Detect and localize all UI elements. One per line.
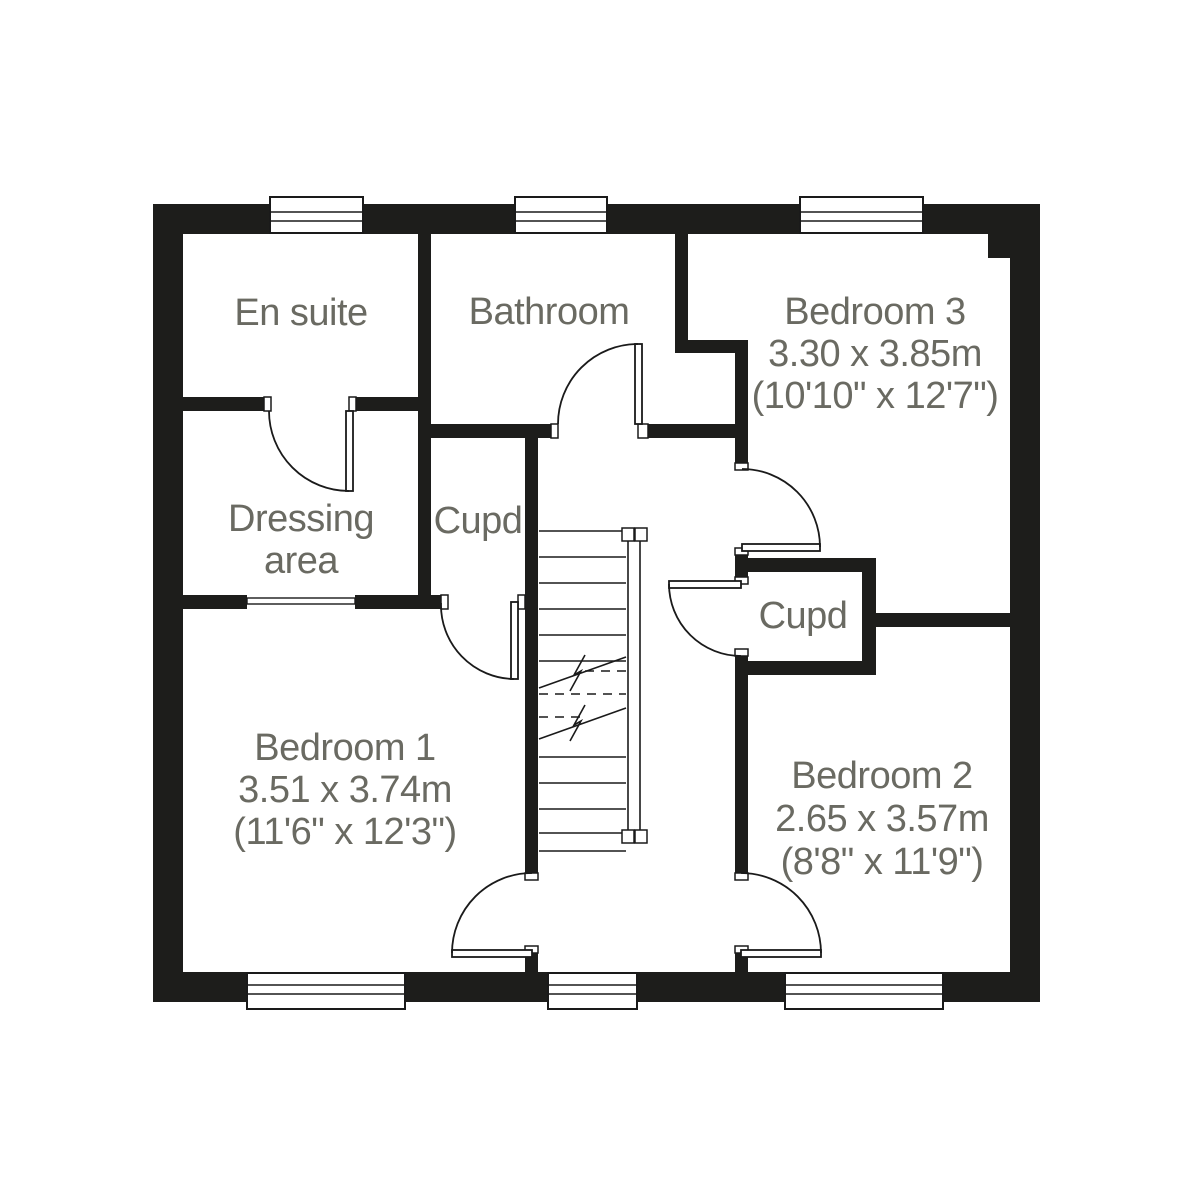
door-bedroom3: [735, 463, 820, 555]
label-bedroom2-imperial: (8'8" x 11'9"): [781, 841, 984, 883]
label-bedroom3-imperial: (10'10" x 12'7"): [752, 375, 999, 417]
label-dressing-line2: area: [264, 540, 339, 582]
label-dressing-line1: Dressing: [228, 498, 374, 540]
wall-ensuite-bottom-right: [356, 397, 418, 411]
door-ensuite: [264, 397, 356, 491]
window-bedroom1: [247, 973, 405, 1009]
wall-dressing-bottom-left: [183, 595, 247, 609]
door-bathroom: [551, 344, 648, 438]
wall-ensuite-bottom-left: [183, 397, 264, 411]
staircase: [539, 528, 647, 851]
cased-opening-dressing: [247, 598, 355, 604]
label-cupboard-right: Cupd: [759, 595, 848, 637]
wall-right: [1010, 204, 1040, 1002]
label-bedroom1: Bedroom 1: [254, 727, 435, 769]
stair-handrail: [622, 528, 647, 843]
stair-treads-upper: [539, 531, 626, 661]
wall-cupboard-right-side: [862, 558, 876, 675]
window-landing: [548, 973, 637, 1009]
label-bathroom: Bathroom: [469, 291, 630, 333]
wall-ensuite-bathroom: [418, 234, 431, 609]
label-bedroom2: Bedroom 2: [791, 755, 972, 797]
wall-jog: [675, 340, 748, 353]
door-bedroom2: [735, 873, 821, 957]
wall-stairwell: [525, 438, 538, 873]
wall-cupboard-right-bottom: [735, 661, 876, 675]
wall-bathroom-bottom-left: [430, 424, 551, 438]
window-bathroom: [515, 197, 607, 233]
label-bedroom1-metric: 3.51 x 3.74m: [238, 769, 452, 811]
window-bedroom3: [800, 197, 923, 233]
stair-treads-lower: [539, 757, 626, 851]
label-bedroom3-metric: 3.30 x 3.85m: [768, 333, 982, 375]
label-bedroom1-imperial: (11'6" x 12'3"): [233, 811, 456, 853]
wall-corner-notch: [988, 234, 1012, 258]
wall-bathroom-bottom-right: [648, 424, 748, 438]
wall-left: [153, 204, 183, 1002]
label-bedroom3: Bedroom 3: [784, 291, 965, 333]
wall-bathroom-bedroom3-upper: [675, 234, 688, 342]
label-bedroom2-metric: 2.65 x 3.57m: [775, 798, 989, 840]
window-ensuite: [270, 197, 363, 233]
wall-bedroom3-bedroom2: [876, 613, 1010, 627]
window-bedroom2: [785, 973, 943, 1009]
wall-dressing-bottom-right: [355, 595, 433, 609]
door-cupboard-right: [669, 577, 748, 656]
door-cupboard-left: [441, 595, 525, 679]
wall-landing-bedroom2: [735, 656, 748, 873]
door-bedroom1: [452, 873, 538, 957]
floor-plan: En suite Bathroom Bedroom 3 3.30 x 3.85m…: [0, 0, 1200, 1200]
label-ensuite: En suite: [234, 292, 367, 334]
wall-cupboard-right-top: [735, 558, 876, 572]
wall-bedroom3-left: [735, 353, 748, 463]
label-cupboard-left: Cupd: [434, 500, 523, 542]
stair-break-lines: [539, 655, 626, 741]
room-labels: En suite Bathroom Bedroom 3 3.30 x 3.85m…: [228, 291, 998, 883]
wall-cupboard-left-stub: [433, 595, 441, 609]
